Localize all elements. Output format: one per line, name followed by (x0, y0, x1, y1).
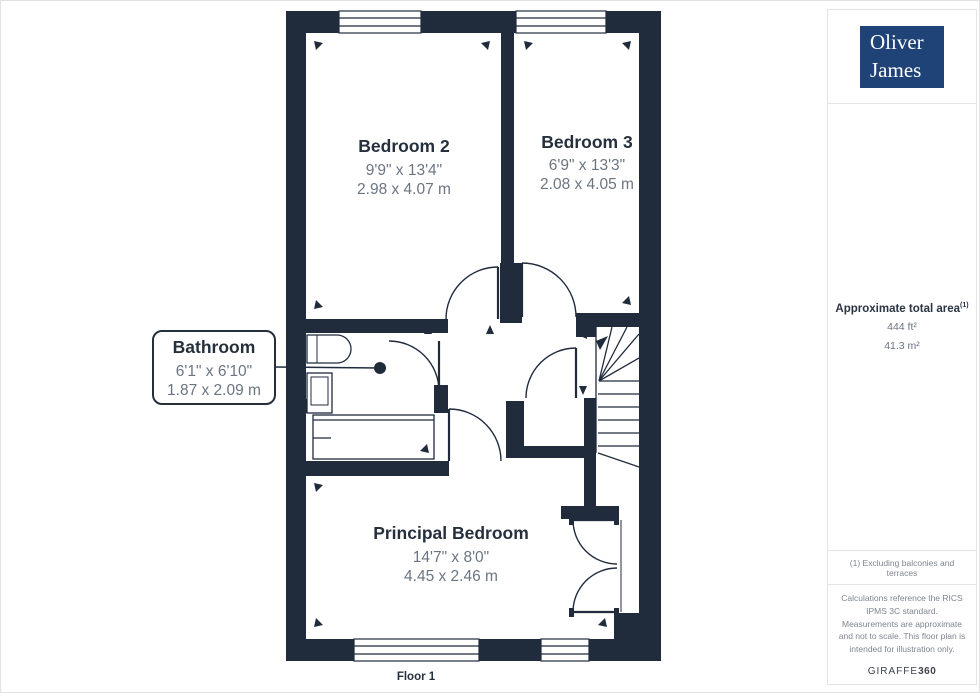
floor-label: Floor 1 (397, 671, 436, 683)
floor-plan-drawing: Bathroom 6'1" x 6'10" 1.87 x 2.09 m (1, 1, 824, 693)
room-bedroom3-name: Bedroom 3 (541, 132, 633, 152)
logo-line1: Oliver (870, 29, 944, 57)
total-area-footnote-marker: (1) (960, 302, 969, 309)
disclaimer-text: Calculations reference the RICS IPMS 3C … (838, 592, 966, 656)
bathroom-fixtures (307, 335, 351, 413)
room-bathroom-imperial: 6'1" x 6'10" (176, 363, 252, 380)
room-bedroom3-metric: 2.08 x 4.05 m (540, 176, 634, 193)
room-bathroom-name: Bathroom (173, 337, 256, 357)
room-bedroom2-imperial: 9'9" x 13'4" (366, 162, 442, 179)
room-bedroom2-name: Bedroom 2 (358, 136, 450, 156)
total-area-ft: 444 ft² (887, 321, 917, 333)
giraffe360-watermark: GIRAFFE360 (868, 666, 937, 677)
giraffe360-regular: GIRAFFE (868, 666, 918, 677)
bathtub (307, 335, 351, 363)
door-landing (526, 348, 576, 398)
total-area-section: Approximate total area(1) 444 ft² 41.3 m… (828, 104, 976, 551)
window (516, 11, 606, 33)
room-principal-metric: 4.45 x 2.46 m (404, 568, 498, 585)
room-bathroom-metric: 1.87 x 2.09 m (167, 382, 261, 399)
logo-line2: James (870, 57, 944, 85)
bathroom-callout: Bathroom 6'1" x 6'10" 1.87 x 2.09 m (153, 331, 386, 404)
logo-section: Oliver James (828, 10, 976, 104)
cupboard (313, 415, 434, 459)
stairs-direction-arrow-icon (596, 336, 608, 350)
floor-plan: Bathroom 6'1" x 6'10" 1.87 x 2.09 m (1, 1, 824, 693)
oliver-james-logo: Oliver James (860, 26, 944, 88)
door-bathroom (389, 341, 439, 391)
label-anchor-dot (374, 362, 386, 374)
info-panel: Oliver James Approximate total area(1) 4… (827, 9, 977, 685)
room-principal-imperial: 14'7" x 8'0" (413, 549, 489, 566)
footnote-text: (1) Excluding balconies and terraces (834, 558, 970, 578)
total-area-title-text: Approximate total area (835, 302, 960, 314)
door-principal-bedroom (449, 409, 501, 461)
disclaimer-section: Calculations reference the RICS IPMS 3C … (828, 585, 976, 684)
window (354, 639, 479, 661)
footnote-section: (1) Excluding balconies and terraces (828, 551, 976, 585)
door-bedroom3 (522, 263, 576, 317)
window (339, 11, 421, 33)
window (541, 639, 589, 661)
giraffe360-bold: 360 (918, 666, 936, 677)
room-bedroom2-metric: 2.98 x 4.07 m (357, 181, 451, 198)
door-bedroom2 (446, 267, 498, 319)
callout-leader-line (275, 367, 380, 368)
floorplan-page: Bathroom 6'1" x 6'10" 1.87 x 2.09 m (0, 0, 980, 693)
room-principal-name: Principal Bedroom (373, 523, 529, 543)
room-bedroom3-imperial: 6'9" x 13'3" (549, 157, 625, 174)
total-area-title: Approximate total area(1) (835, 302, 968, 315)
total-area-m: 41.3 m² (884, 340, 920, 352)
stairs (596, 327, 639, 467)
wardrobe-double-doors (573, 520, 621, 612)
